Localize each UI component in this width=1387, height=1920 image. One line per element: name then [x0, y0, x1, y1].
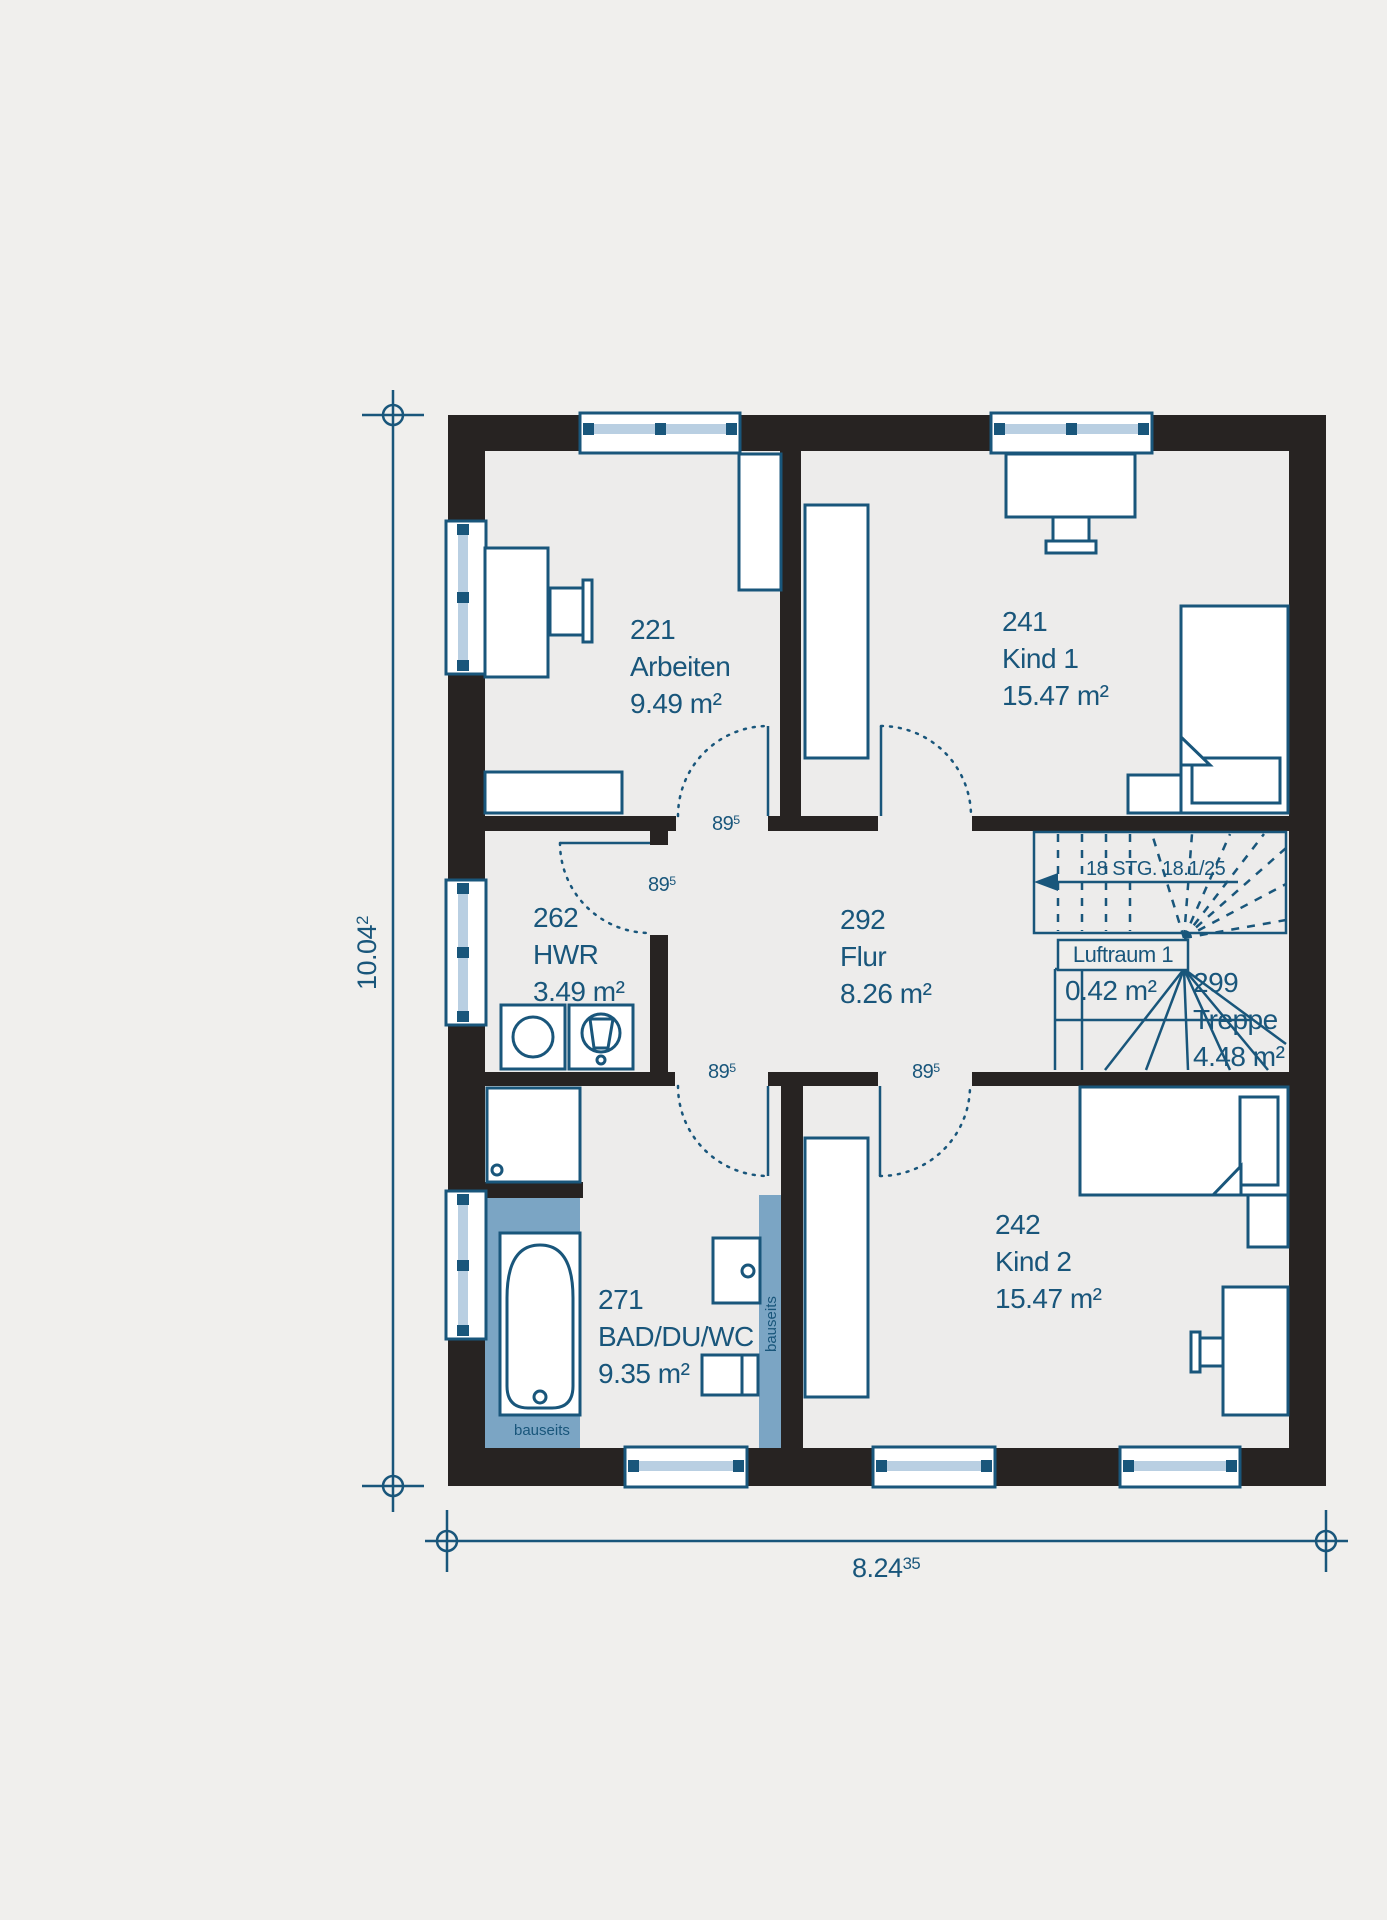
- cabinet-arbeiten: [739, 454, 781, 590]
- door-width-main: 89: [708, 1061, 729, 1083]
- room-area: 9.35 m²: [598, 1355, 754, 1392]
- bauseits-note-wall: bauseits: [763, 1296, 780, 1352]
- dimension-label-height: 10.042: [352, 916, 383, 990]
- door-width-sup: 5: [669, 874, 675, 888]
- wall-h1-mid: [768, 816, 878, 831]
- room-label-hwr: 262 HWR 3.49 m²: [533, 899, 624, 1010]
- void-area: 0.42 m²: [1065, 972, 1156, 1009]
- room-name: BAD/DU/WC: [598, 1318, 754, 1355]
- room-name: Arbeiten: [630, 648, 730, 685]
- window-arbeiten-top: [580, 413, 740, 453]
- door-width-sup: 5: [733, 813, 739, 827]
- chair-kind1-seat: [1053, 517, 1089, 543]
- room-name: Kind 2: [995, 1243, 1102, 1280]
- dimension-height-main: 10.04: [352, 925, 382, 990]
- wall-hwr-flur: [650, 935, 668, 1072]
- stair-annotation-text: 18 STG. 18.1/25: [1086, 858, 1225, 880]
- floorplan-canvas: 221 Arbeiten 9.49 m² 241 Kind 1 15.47 m²…: [0, 0, 1387, 1920]
- chair-arbeiten-seat: [550, 588, 583, 635]
- room-label-flur: 292 Flur 8.26 m²: [840, 901, 931, 1012]
- room-area: 15.47 m²: [1002, 677, 1109, 714]
- void-label: Luftraum 1: [1058, 940, 1188, 970]
- door-width-label-hwr: 895: [648, 874, 676, 897]
- bathtub-outer: [500, 1233, 580, 1415]
- window-hwr-left: [446, 880, 486, 1025]
- door-width-label-bad: 895: [708, 1061, 736, 1084]
- window-kind1-top: [991, 413, 1152, 453]
- chair-arbeiten-back: [583, 580, 592, 642]
- door-width-main: 89: [712, 813, 733, 835]
- room-label-arbeiten: 221 Arbeiten 9.49 m²: [630, 611, 730, 722]
- window-arbeiten-left: [446, 521, 486, 674]
- room-number: 262: [533, 899, 624, 936]
- wall-bad-kind2: [781, 1086, 803, 1448]
- room-number: 242: [995, 1206, 1102, 1243]
- pillow-kind2: [1240, 1097, 1278, 1185]
- window-bad-bottom: [625, 1447, 747, 1487]
- room-name: Treppe: [1193, 1001, 1284, 1038]
- room-number: 271: [598, 1281, 754, 1318]
- dimension-label-width: 8.2435: [852, 1553, 920, 1584]
- wall-h1-left: [485, 816, 676, 831]
- sideboard-arbeiten: [485, 772, 622, 813]
- room-area: 8.26 m²: [840, 975, 931, 1012]
- room-number: 292: [840, 901, 931, 938]
- wall-h3-left: [485, 1072, 675, 1086]
- room-label-treppe: 299 Treppe 4.48 m²: [1193, 964, 1284, 1075]
- room-name: Flur: [840, 938, 931, 975]
- room-label-kind2: 242 Kind 2 15.47 m²: [995, 1206, 1102, 1317]
- wall-arbeiten-kind1: [780, 451, 801, 817]
- void-name: Luftraum 1: [1073, 942, 1173, 968]
- bauseits-note-bath: bauseits: [514, 1422, 570, 1439]
- room-label-kind1: 241 Kind 1 15.47 m²: [1002, 603, 1109, 714]
- nightstand-kind1: [1128, 775, 1181, 813]
- wall-h3-mid: [768, 1072, 878, 1086]
- wardrobe-kind1: [805, 505, 868, 758]
- door-width-label-kind2: 895: [912, 1061, 940, 1084]
- door-width-label-arbeiten: 895: [712, 813, 740, 836]
- door-width-main: 89: [912, 1061, 933, 1083]
- chair-kind2-seat: [1200, 1338, 1223, 1366]
- room-name: HWR: [533, 936, 624, 973]
- wall-exterior-right: [1289, 415, 1326, 1486]
- dimension-width-main: 8.24: [852, 1553, 903, 1583]
- wardrobe-kind2: [805, 1138, 868, 1397]
- void-area-label: 0.42 m²: [1065, 972, 1156, 1009]
- dimension-width-sup: 35: [903, 1554, 921, 1573]
- wall-hwr-jamb: [650, 831, 668, 845]
- washer-drum-icon: [513, 1017, 553, 1057]
- window-kind2-bottom-right: [1120, 1447, 1240, 1487]
- chair-kind1-back: [1046, 541, 1096, 553]
- room-area: 15.47 m²: [995, 1280, 1102, 1317]
- room-number: 221: [630, 611, 730, 648]
- room-area: 4.48 m²: [1193, 1038, 1284, 1075]
- wall-shower-tub: [483, 1182, 583, 1198]
- dryer-knob-icon: [597, 1056, 605, 1064]
- stair-annotation: 18 STG. 18.1/25: [1086, 858, 1225, 881]
- desk-kind1: [1006, 454, 1135, 517]
- nightstand-kind2: [1248, 1195, 1288, 1247]
- door-width-sup: 5: [933, 1061, 939, 1075]
- room-number: 299: [1193, 964, 1284, 1001]
- dimension-height-sup: 2: [353, 916, 372, 925]
- room-area: 9.49 m²: [630, 685, 730, 722]
- window-kind2-bottom-left: [873, 1447, 995, 1487]
- wall-h1-right: [972, 816, 1289, 831]
- bauseits-text: bauseits: [514, 1422, 570, 1439]
- bauseits-text: bauseits: [763, 1296, 780, 1352]
- desk-arbeiten: [485, 548, 548, 677]
- door-width-sup: 5: [729, 1061, 735, 1075]
- room-area: 3.49 m²: [533, 973, 624, 1010]
- door-width-main: 89: [648, 874, 669, 896]
- desk-kind2: [1223, 1287, 1288, 1415]
- room-name: Kind 1: [1002, 640, 1109, 677]
- window-bad-left: [446, 1191, 486, 1339]
- room-number: 241: [1002, 603, 1109, 640]
- room-label-bad: 271 BAD/DU/WC 9.35 m²: [598, 1281, 754, 1392]
